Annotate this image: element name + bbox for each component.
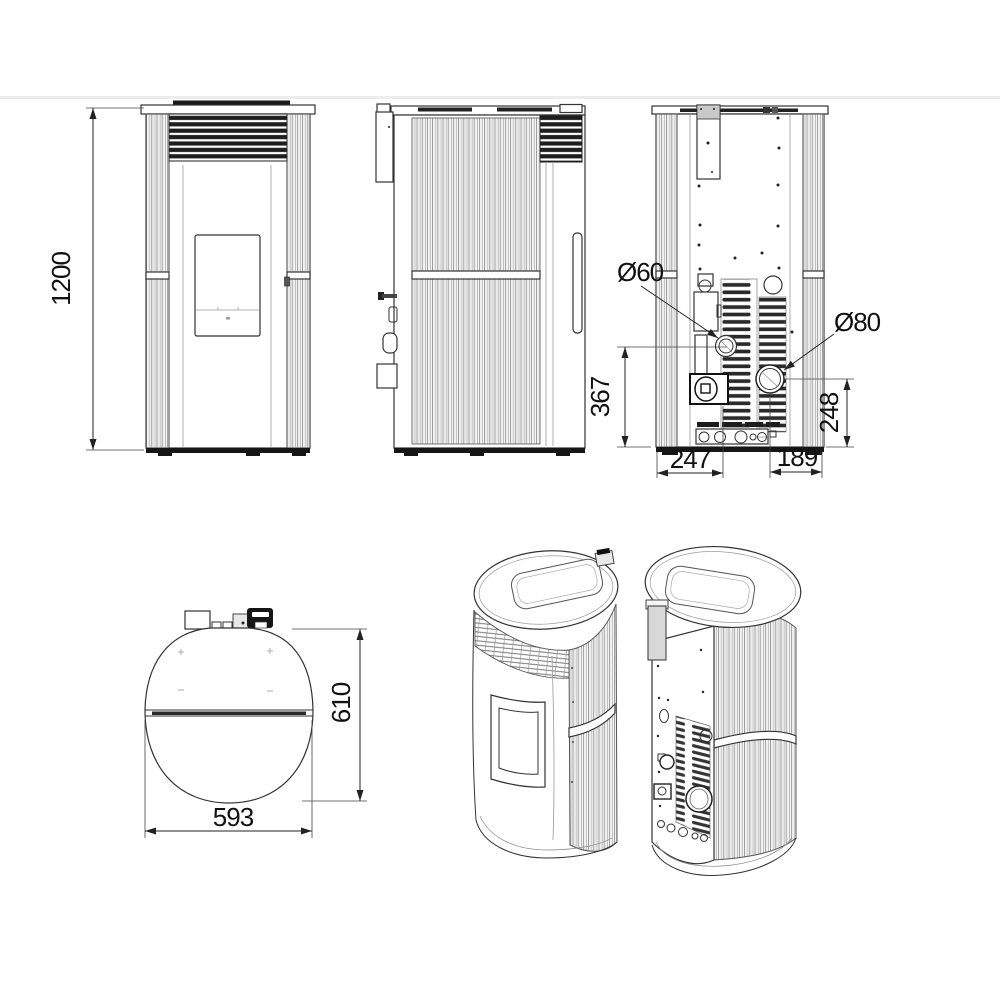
ribs-joint (412, 271, 540, 279)
drawing-canvas: 1200 (0, 0, 1000, 1000)
dim-depth-label: 610 (326, 682, 356, 723)
dim-intake-diameter-label: Ø60 (617, 257, 664, 287)
top-cap (141, 105, 315, 114)
probe-rod (382, 294, 397, 298)
side-channel (695, 335, 707, 379)
bottom-vents (697, 422, 780, 427)
dim-intake-offset-label: 247 (670, 444, 711, 474)
dim-flue-height-label: 248 (814, 392, 844, 433)
door-handle (573, 233, 582, 333)
side-view (376, 104, 585, 456)
rear-fitting (185, 611, 210, 629)
dim-flue-diameter-label: Ø80 (834, 307, 881, 337)
cap-detail (418, 108, 472, 112)
vent-grille (676, 716, 710, 838)
left-column-joint (146, 272, 169, 279)
cable-grommet (764, 276, 782, 294)
cap-detail (497, 108, 552, 112)
right-column-joint (803, 271, 824, 278)
front-grille (169, 114, 287, 161)
technical-drawing: 1200 (0, 0, 1000, 1000)
flue-damper-slot (252, 612, 269, 617)
front-facet-edge (552, 656, 554, 840)
door-logo (226, 317, 230, 320)
door-latch (285, 277, 290, 286)
flue-damper-step (255, 622, 267, 628)
front-view: 1200 (46, 101, 315, 457)
dim-height-label: 1200 (46, 252, 76, 306)
intake-port (660, 755, 674, 769)
dim-intake-height-label: 367 (585, 376, 615, 417)
foot (292, 453, 306, 456)
hopper-chute-top (697, 105, 720, 119)
cap-fitting (772, 107, 778, 113)
hopper-chute (648, 606, 666, 660)
dim-width-label: 593 (213, 802, 254, 832)
screw (242, 622, 245, 625)
iso-back-view (642, 540, 804, 875)
chimney-stub (595, 548, 615, 567)
terminal-box (694, 292, 718, 331)
top-separator (0, 96, 1000, 99)
foot (158, 453, 172, 456)
foot (470, 453, 484, 456)
side-ribs (412, 118, 540, 444)
half-joint-seal (152, 712, 306, 716)
cap-tab (560, 105, 582, 113)
side-grille (540, 116, 582, 162)
flue-stub (377, 364, 397, 388)
right-rib-column (287, 114, 310, 448)
foot (556, 453, 570, 456)
right-column-joint (287, 272, 310, 279)
foot (404, 453, 418, 456)
side-base (394, 448, 585, 453)
top-vent-slit (173, 101, 290, 106)
foot (246, 453, 260, 456)
rear-bracket (376, 112, 393, 182)
cap-fitting (763, 107, 770, 113)
iso-front-view (471, 546, 620, 858)
fan-housing (654, 784, 671, 799)
dim-height: 1200 (46, 108, 144, 450)
screw (388, 126, 390, 128)
back-view: Ø60 Ø80 367 247 189 24 (585, 105, 881, 478)
intake-stub (383, 333, 397, 353)
front-base (146, 448, 310, 453)
stove-door (195, 235, 260, 336)
left-rib-column (146, 114, 169, 448)
top-view: 610 593 (145, 608, 367, 838)
dim-flue-offset-label: 189 (777, 442, 818, 472)
